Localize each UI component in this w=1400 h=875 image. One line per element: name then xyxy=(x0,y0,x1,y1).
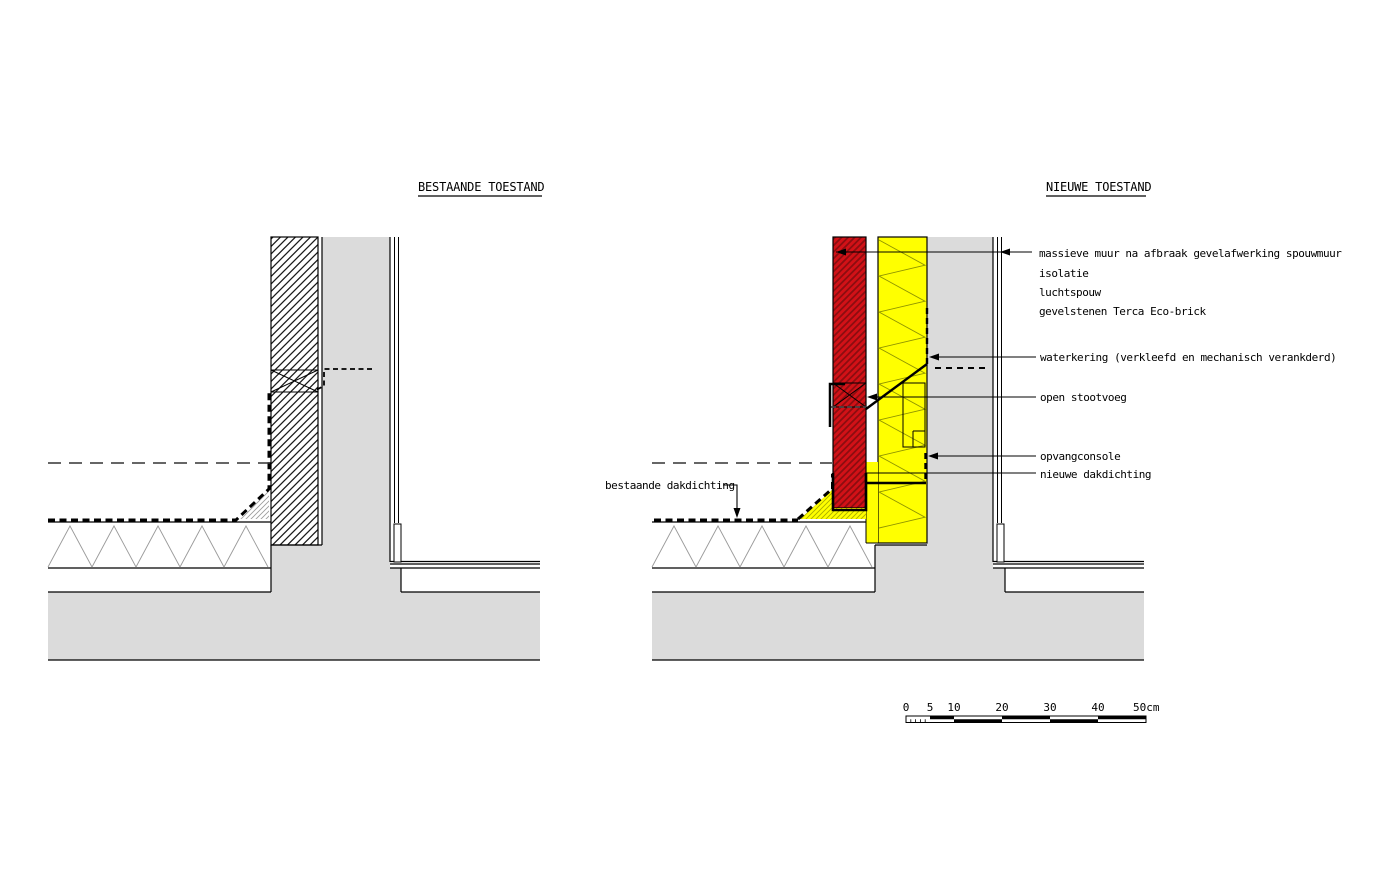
new-condition-detail xyxy=(652,237,1144,660)
interior-finish-lines-right xyxy=(998,237,1002,523)
new-brick-veneer xyxy=(833,237,866,508)
skirting-right xyxy=(997,524,1004,562)
new-footing xyxy=(875,545,1005,592)
label-gevelstenen: gevelstenen Terca Eco-brick xyxy=(1039,305,1206,318)
label-luchtspouw: luchtspouw xyxy=(1039,286,1102,299)
scale-tick-40: 40 xyxy=(1091,701,1104,714)
scale-end-label: 50cm xyxy=(1133,701,1160,714)
label-isolatie: isolatie xyxy=(1039,267,1088,280)
right-detail-title: NIEUWE TOESTAND xyxy=(1046,180,1151,194)
left-detail-title: BESTAANDE TOESTAND xyxy=(418,180,544,194)
floor-lines-right-detail xyxy=(993,562,1144,593)
scale-tick-0: 0 xyxy=(903,701,910,714)
detail-drawing: BESTAANDE TOESTAND NIEUWE TOESTAND massi… xyxy=(0,0,1400,875)
scale-tick-10: 10 xyxy=(947,701,960,714)
existing-footing xyxy=(271,545,401,592)
scale-tick-30: 30 xyxy=(1043,701,1056,714)
label-bestaande-dakdichting: bestaande dakdichting xyxy=(605,479,735,492)
cavity-insulation xyxy=(866,237,927,543)
scale-tick-5: 5 xyxy=(927,701,934,714)
label-opvangconsole: opvangconsole xyxy=(1040,450,1120,463)
existing-inner-wall xyxy=(322,237,390,562)
label-massieve-muur: massieve muur na afbraak gevelafwerking … xyxy=(1039,247,1342,260)
scale-bar: 0 5 10 20 30 40 50cm xyxy=(903,701,1160,723)
massive-inner-wall xyxy=(927,237,993,562)
existing-roof-membrane xyxy=(48,391,269,520)
existing-brick-veneer xyxy=(271,237,318,545)
construction-detail-sheet: BESTAANDE TOESTAND NIEUWE TOESTAND massi… xyxy=(0,0,1400,875)
existing-condition-detail xyxy=(48,237,540,660)
ground-slab-left xyxy=(48,592,540,660)
ground-slab-right xyxy=(652,592,1144,660)
floor-lines-left-detail xyxy=(390,562,540,593)
roof-insulation-right xyxy=(652,526,872,567)
roof-insulation-left xyxy=(48,526,268,567)
label-nieuwe-dakdichting: nieuwe dakdichting xyxy=(1040,468,1151,481)
scale-tick-20: 20 xyxy=(995,701,1008,714)
interior-finish-lines-left xyxy=(395,237,399,523)
label-waterkering: waterkering (verkleefd en mechanisch ver… xyxy=(1040,351,1336,364)
label-open-stootvoeg: open stootvoeg xyxy=(1040,391,1126,404)
skirting-left xyxy=(394,524,401,562)
